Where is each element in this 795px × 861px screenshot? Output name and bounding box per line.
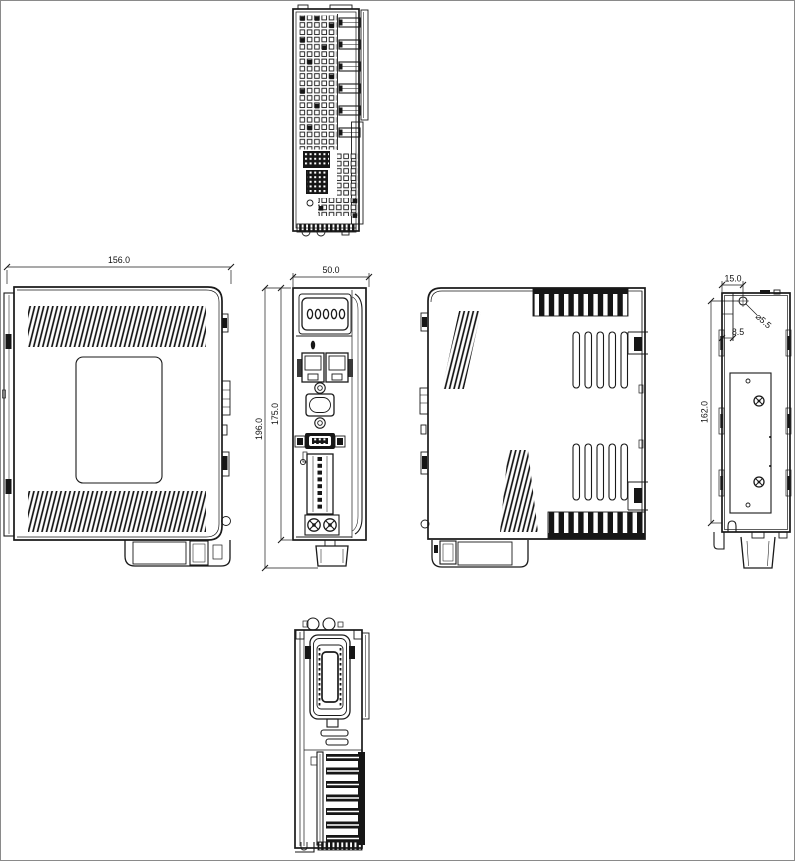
din-plate-edge xyxy=(3,293,15,536)
screw-terminals xyxy=(305,515,339,535)
dim-side-width: 156.0 xyxy=(4,255,234,284)
rj45-ports xyxy=(297,353,353,382)
usb-connector xyxy=(295,433,345,449)
heatsink-comb-top xyxy=(533,288,628,316)
vent-hatch-top xyxy=(28,306,206,347)
dim-label-196: 196.0 xyxy=(254,418,264,440)
vent-grid-bottom xyxy=(318,198,358,216)
dim-panel-height: 175.0 xyxy=(270,285,292,543)
bottom-view xyxy=(295,618,369,852)
left-side-view: 156.0 xyxy=(3,255,235,566)
vent-hatch-bottom xyxy=(28,491,206,532)
led-1 xyxy=(307,309,312,318)
dim-label-175: 175.0 xyxy=(270,403,280,425)
screw-terminal-a xyxy=(307,618,319,630)
right-side-view xyxy=(420,288,648,567)
status-slot xyxy=(311,341,315,350)
terminal-housing xyxy=(305,635,355,719)
vent-hatch-lower xyxy=(500,450,538,532)
slot-vents-lower xyxy=(573,444,628,500)
led-5 xyxy=(339,309,344,318)
vent-hatch-upper xyxy=(442,311,481,389)
dim-front-width: 50.0 xyxy=(290,265,372,287)
front-view: 50.0 196.0 175.0 xyxy=(254,265,372,571)
dim-label-162: 162.0 xyxy=(700,401,710,423)
rear-mounting-plate xyxy=(730,373,771,513)
heatsink-fins-bottom xyxy=(311,752,365,845)
dim-label-8-5: 8.5 xyxy=(732,327,744,337)
heatsink-comb-bottom xyxy=(548,512,645,539)
top-view xyxy=(293,5,368,236)
rear-view: ⌀5.5 15.0 8.5 162.0 xyxy=(700,274,792,569)
lower-mount-slot xyxy=(728,521,736,532)
vent-hole-grid xyxy=(300,16,337,150)
dimension-drawing: 156.0 xyxy=(0,0,795,861)
vent-slot-1 xyxy=(321,730,348,736)
bottom-base xyxy=(125,540,230,566)
led-4 xyxy=(331,309,336,318)
top-connector-block xyxy=(303,151,330,194)
bottom-base-right xyxy=(432,540,528,567)
screw-bump-1 xyxy=(302,232,310,236)
led-indicator-panel xyxy=(299,294,351,334)
slot-vents-upper xyxy=(573,332,628,388)
dim-label-15: 15.0 xyxy=(724,274,741,284)
dim-hole-diameter: ⌀5.5 xyxy=(746,304,773,331)
screw-bump-2 xyxy=(317,232,325,236)
vent-grid-right xyxy=(337,152,358,196)
side-cover-seam xyxy=(355,294,362,534)
led-2 xyxy=(315,309,320,318)
mounting-foot xyxy=(316,540,348,566)
dim-label-50: 50.0 xyxy=(322,265,339,275)
dim-label-156: 156.0 xyxy=(108,255,130,265)
dim-label-hole: ⌀5.5 xyxy=(754,311,774,330)
drawing-sheet: 156.0 xyxy=(0,0,795,861)
heatsink-fins-top xyxy=(339,18,360,137)
led-3 xyxy=(323,309,328,318)
bottom-serrated-edge xyxy=(297,224,356,232)
label-area xyxy=(76,357,162,483)
screw-terminal-b xyxy=(323,618,335,630)
bottom-edge xyxy=(295,842,362,852)
sheet-border xyxy=(1,1,795,861)
d-sub-connector xyxy=(306,383,334,428)
side-flange xyxy=(361,10,368,120)
terminal-block xyxy=(300,452,333,514)
vent-slot-2 xyxy=(326,739,348,745)
rear-foot xyxy=(714,532,787,568)
top-screw-hole xyxy=(307,200,313,206)
